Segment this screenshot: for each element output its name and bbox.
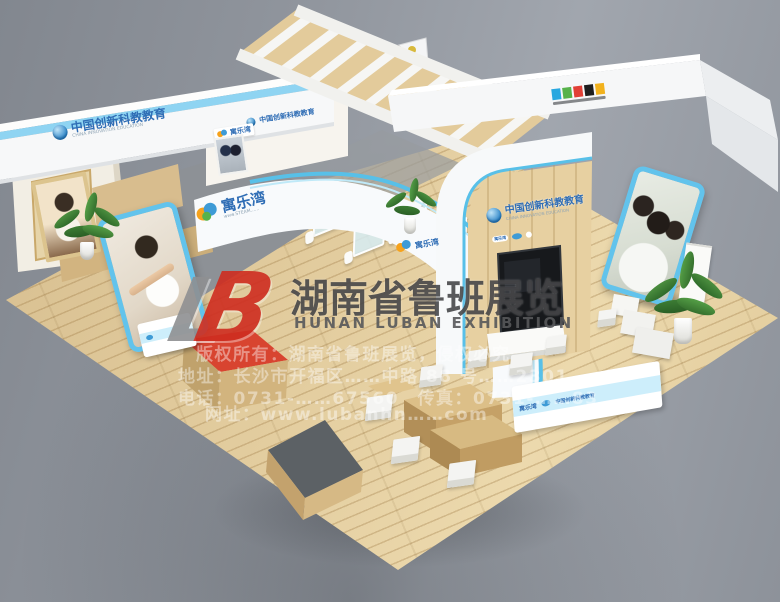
potted-plant — [48, 196, 128, 276]
cube-stool — [419, 364, 443, 388]
cube-stool — [391, 436, 420, 464]
cube-stool — [545, 334, 567, 355]
cube-stool — [509, 352, 533, 376]
mini-blue-logo-icon — [146, 334, 154, 340]
mini-round-logo-icon — [525, 231, 532, 238]
mini-blue-logo-icon — [541, 399, 550, 407]
cube-stool — [447, 460, 476, 488]
gray-platform — [266, 420, 363, 520]
exhibition-booth-render: 中国创新科教教育 CHINA INNOVATION EDUCATION 中国创新… — [0, 0, 780, 602]
potted-plant — [382, 182, 442, 246]
tv-screen — [498, 246, 563, 333]
cube-stool — [365, 394, 393, 421]
counter-brand: 寓乐湾 — [519, 400, 537, 412]
cube-stool — [597, 309, 617, 328]
potted-plant — [640, 256, 730, 366]
counter-logo-band — [139, 322, 194, 344]
cube-stool — [467, 348, 488, 368]
gear-globe-logo-icon — [485, 207, 502, 224]
counter-slogan: 中国创新科教教育 — [555, 391, 595, 405]
